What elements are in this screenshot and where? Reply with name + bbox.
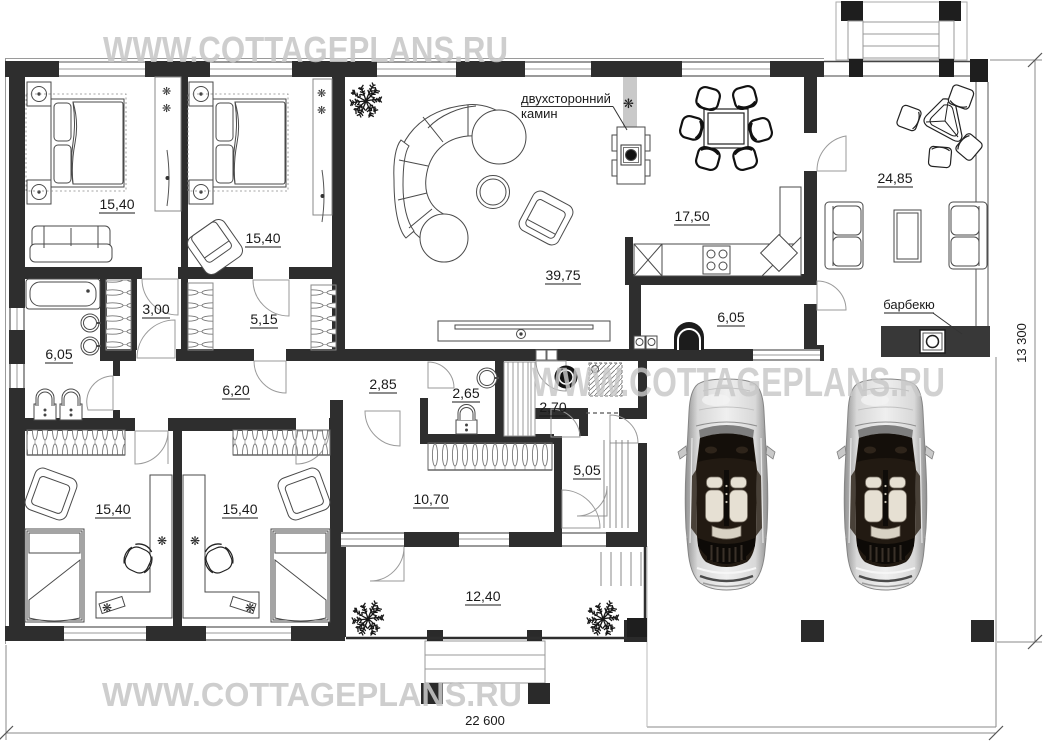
svg-text:5,05: 5,05 [573, 462, 600, 478]
svg-text:❋: ❋ [623, 96, 634, 111]
svg-text:❋: ❋ [162, 86, 171, 98]
svg-text:22 600: 22 600 [465, 713, 505, 728]
svg-text:15,40: 15,40 [245, 230, 280, 246]
svg-text:6,05: 6,05 [717, 309, 744, 325]
svg-text:❋: ❋ [245, 601, 255, 615]
svg-text:3,00: 3,00 [142, 301, 169, 317]
svg-text:39,75: 39,75 [545, 267, 580, 283]
svg-text:2,65: 2,65 [452, 385, 479, 401]
svg-text:❋: ❋ [102, 601, 112, 615]
svg-text:барбекю: барбекю [883, 297, 935, 312]
svg-text:15,40: 15,40 [222, 501, 257, 517]
svg-text:WWW.COTTAGEPLANS.RU: WWW.COTTAGEPLANS.RU [532, 359, 945, 405]
svg-text:10,70: 10,70 [413, 491, 448, 507]
svg-text:12,40: 12,40 [465, 588, 500, 604]
svg-text:17,50: 17,50 [674, 208, 709, 224]
svg-text:6,20: 6,20 [222, 382, 249, 398]
svg-text:5,15: 5,15 [250, 311, 277, 327]
svg-text:15,40: 15,40 [95, 501, 130, 517]
svg-text:WWW.COTTAGEPLANS.RU: WWW.COTTAGEPLANS.RU [102, 676, 522, 713]
svg-text:камин: камин [521, 106, 558, 121]
svg-text:24,85: 24,85 [877, 170, 912, 186]
svg-text:❋: ❋ [190, 534, 200, 548]
svg-text:❋: ❋ [162, 103, 171, 115]
svg-text:WWW.COTTAGEPLANS.RU: WWW.COTTAGEPLANS.RU [103, 29, 508, 70]
svg-text:13 300: 13 300 [1014, 323, 1029, 363]
svg-text:15,40: 15,40 [99, 196, 134, 212]
svg-text:2,85: 2,85 [369, 376, 396, 392]
svg-text:6,05: 6,05 [45, 346, 72, 362]
svg-text:❋: ❋ [317, 105, 326, 117]
svg-text:❋: ❋ [317, 88, 326, 100]
svg-text:❋: ❋ [157, 534, 167, 548]
svg-text:двухсторонний: двухсторонний [521, 91, 611, 106]
